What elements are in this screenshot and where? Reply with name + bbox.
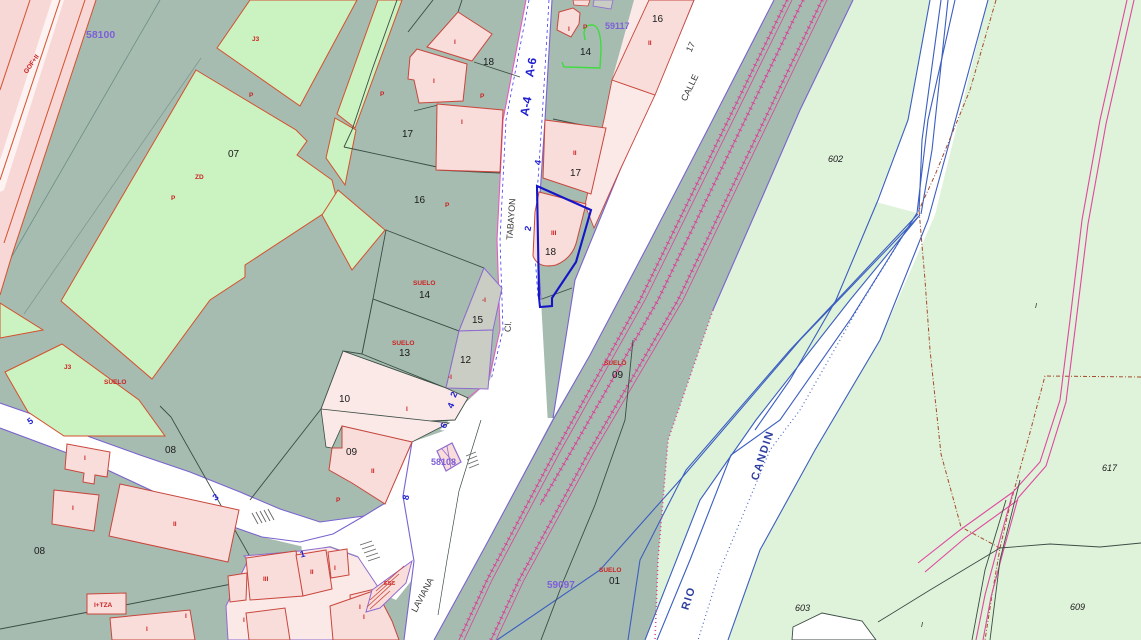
svg-text:09: 09	[346, 447, 358, 458]
svg-text:59117: 59117	[605, 21, 630, 31]
svg-text:I: I	[243, 617, 245, 624]
svg-text:III: III	[263, 576, 269, 583]
svg-text:P: P	[380, 91, 385, 98]
svg-text:II: II	[371, 468, 375, 475]
svg-text:I: I	[185, 613, 187, 620]
svg-text:I: I	[406, 406, 408, 413]
svg-text:SUELO: SUELO	[604, 360, 626, 367]
svg-text:12: 12	[460, 355, 472, 366]
svg-text:II: II	[310, 569, 314, 576]
svg-text:59097: 59097	[547, 580, 575, 591]
svg-text:I: I	[1035, 303, 1037, 310]
svg-text:01: 01	[609, 576, 621, 587]
svg-text:16: 16	[414, 195, 426, 206]
svg-text:P: P	[445, 202, 450, 209]
svg-text:18: 18	[545, 247, 557, 258]
svg-text:II: II	[173, 521, 177, 528]
svg-text:17: 17	[402, 129, 414, 140]
svg-text:SUELO: SUELO	[392, 340, 414, 347]
svg-text:I: I	[72, 505, 74, 512]
svg-text:I: I	[454, 39, 456, 46]
svg-text:58108: 58108	[431, 457, 456, 467]
svg-text:ESC: ESC	[384, 581, 395, 587]
svg-text:I+TZA: I+TZA	[94, 602, 113, 609]
svg-text:P: P	[171, 195, 176, 202]
svg-text:10: 10	[339, 394, 351, 405]
svg-text:I: I	[461, 119, 463, 126]
svg-text:II: II	[573, 150, 577, 157]
svg-text:P: P	[583, 24, 588, 31]
svg-text:I: I	[334, 565, 336, 572]
svg-text:13: 13	[399, 348, 411, 359]
svg-text:I: I	[84, 455, 86, 462]
svg-text:P: P	[480, 93, 485, 100]
svg-text:I: I	[568, 26, 570, 33]
svg-text:I: I	[433, 78, 435, 85]
svg-text:J3: J3	[64, 364, 72, 371]
svg-text:609: 609	[1070, 602, 1085, 612]
svg-text:-I: -I	[482, 297, 486, 304]
svg-text:602: 602	[828, 154, 843, 164]
svg-text:58100: 58100	[86, 29, 115, 41]
svg-text:14: 14	[419, 290, 431, 301]
svg-text:617: 617	[1102, 463, 1118, 473]
svg-text:II: II	[648, 40, 652, 47]
svg-text:15: 15	[472, 315, 484, 326]
svg-text:14: 14	[580, 47, 592, 58]
svg-text:I: I	[921, 622, 923, 629]
svg-text:Cl.: Cl.	[503, 321, 514, 333]
svg-text:-I: -I	[448, 374, 452, 381]
svg-text:603: 603	[795, 603, 810, 613]
svg-text:08: 08	[34, 546, 46, 557]
svg-text:18: 18	[483, 57, 495, 68]
svg-text:09: 09	[612, 370, 624, 381]
svg-text:ZD: ZD	[195, 174, 204, 181]
svg-text:I: I	[363, 614, 365, 621]
svg-text:SUELO: SUELO	[104, 379, 126, 386]
svg-text:I: I	[146, 626, 148, 633]
svg-text:SUELO: SUELO	[413, 280, 435, 287]
svg-text:I: I	[359, 604, 361, 611]
svg-text:16: 16	[652, 14, 664, 25]
svg-text:08: 08	[165, 445, 177, 456]
svg-text:J3: J3	[252, 36, 260, 43]
svg-text:17: 17	[570, 168, 582, 179]
svg-text:III: III	[551, 230, 557, 237]
svg-text:07: 07	[228, 149, 240, 160]
svg-text:SUELO: SUELO	[599, 567, 621, 574]
svg-text:P: P	[336, 497, 341, 504]
svg-text:P: P	[249, 92, 254, 99]
